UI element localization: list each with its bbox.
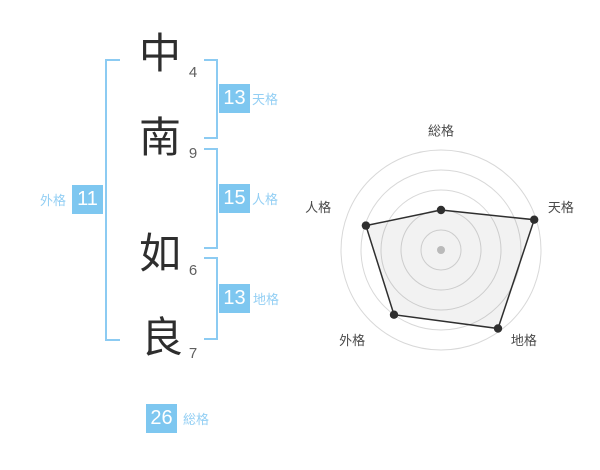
stroke-count-1: 4 — [185, 65, 201, 81]
radar-axis-label: 総格 — [428, 124, 454, 139]
radar-data-polygon — [366, 210, 534, 329]
chikaku-label: 地格 — [253, 292, 279, 308]
jinkaku-value-box: 15 — [219, 184, 250, 213]
name-analysis-page: 中 南 如 良 4 9 6 7 13 天格 15 人格 13 地格 外格 11 … — [0, 0, 600, 470]
name-character-2: 南 — [132, 114, 188, 162]
soukaku-value-box: 26 — [146, 404, 177, 433]
radar-data-point — [530, 216, 538, 224]
radar-data-point — [390, 311, 398, 319]
chikaku-value-box: 13 — [219, 284, 250, 313]
name-character-1: 中 — [132, 30, 188, 78]
jinkaku-label: 人格 — [252, 192, 278, 208]
tenkaku-value-box: 13 — [219, 84, 250, 113]
soukaku-label: 総格 — [183, 412, 209, 428]
radar-axis-label: 天格 — [548, 200, 574, 215]
radar-data-point — [362, 221, 370, 229]
gaikaku-label: 外格 — [40, 193, 66, 209]
chikaku-bracket — [204, 257, 218, 340]
tenkaku-bracket — [204, 59, 218, 139]
stroke-count-4: 7 — [185, 346, 201, 362]
name-character-4: 良 — [134, 314, 190, 362]
radar-chart: 総格天格地格外格人格 — [296, 112, 586, 372]
gaikaku-bracket — [105, 59, 120, 341]
jinkaku-bracket — [204, 148, 218, 249]
gaikaku-value-box: 11 — [72, 185, 103, 214]
radar-axis-label: 人格 — [305, 200, 331, 215]
stroke-count-3: 6 — [185, 263, 201, 279]
radar-axis-label: 外格 — [339, 333, 365, 348]
radar-data-point — [494, 324, 502, 332]
name-character-3: 如 — [132, 230, 188, 278]
tenkaku-label: 天格 — [252, 92, 278, 108]
stroke-count-2: 9 — [185, 146, 201, 162]
radar-data-point — [437, 206, 445, 214]
radar-axis-label: 地格 — [511, 333, 537, 348]
